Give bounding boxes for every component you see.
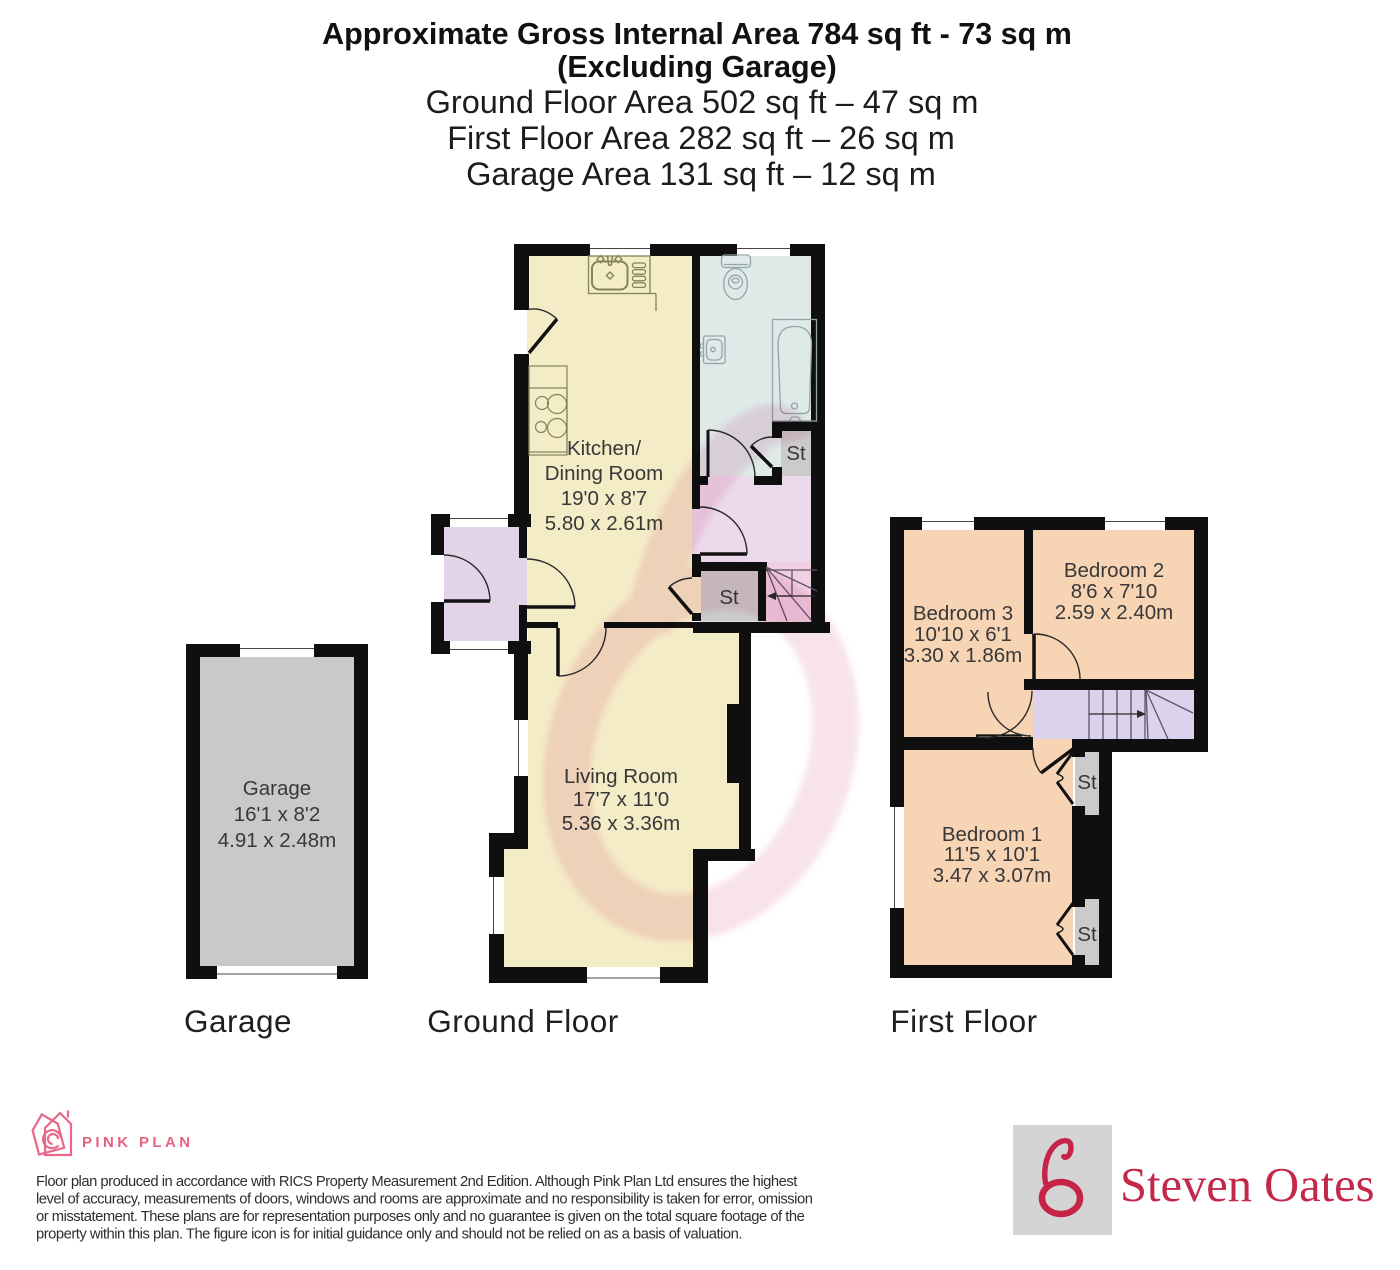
svg-text:10'10 x 6'1: 10'10 x 6'1 [914, 623, 1012, 646]
svg-text:Bedroom 3: Bedroom 3 [913, 602, 1013, 625]
svg-text:PINK PLAN: PINK PLAN [82, 1134, 193, 1151]
svg-text:St: St [1077, 923, 1097, 946]
svg-text:8'6 x 7'10: 8'6 x 7'10 [1071, 580, 1157, 603]
svg-text:4.91 x 2.48m: 4.91 x 2.48m [218, 829, 337, 852]
svg-text:(Excluding Garage): (Excluding Garage) [557, 50, 837, 84]
svg-text:Garage: Garage [184, 1003, 292, 1039]
svg-text:Garage: Garage [243, 777, 311, 800]
svg-text:3.47 x 3.07m: 3.47 x 3.07m [933, 864, 1052, 887]
svg-text:11'5 x 10'1: 11'5 x 10'1 [944, 843, 1040, 866]
svg-text:5.80 x 2.61m: 5.80 x 2.61m [545, 512, 664, 535]
svg-text:St: St [1077, 771, 1097, 794]
svg-text:Floor plan produced in accorda: Floor plan produced in accordance with R… [36, 1174, 797, 1190]
svg-text:level of accuracy, measurement: level of accuracy, measurements of doors… [36, 1192, 813, 1208]
svg-text:Steven Oates: Steven Oates [1120, 1159, 1375, 1212]
svg-text:St: St [786, 442, 806, 465]
svg-text:16'1 x 8'2: 16'1 x 8'2 [234, 803, 320, 826]
svg-text:Bedroom 2: Bedroom 2 [1064, 559, 1164, 582]
svg-text:Kitchen/: Kitchen/ [567, 437, 641, 460]
svg-text:Approximate Gross Internal Are: Approximate Gross Internal Area 784 sq f… [322, 17, 1072, 51]
svg-text:19'0 x 8'7: 19'0 x 8'7 [561, 487, 647, 510]
svg-text:3.30 x 1.86m: 3.30 x 1.86m [904, 644, 1023, 667]
svg-text:First Floor: First Floor [890, 1003, 1037, 1039]
svg-text:or misstatement. These plans a: or misstatement. These plans are for rep… [36, 1209, 805, 1225]
svg-text:2.59 x 2.40m: 2.59 x 2.40m [1055, 601, 1174, 624]
svg-text:property within this plan. The: property within this plan. The figure ic… [36, 1227, 742, 1243]
svg-text:Dining Room: Dining Room [545, 462, 664, 485]
svg-text:Garage Area 131 sq ft – 12 sq: Garage Area 131 sq ft – 12 sq m [466, 156, 936, 192]
svg-text:First Floor Area 282 sq ft – 2: First Floor Area 282 sq ft – 26 sq m [447, 120, 955, 156]
svg-text:Ground Floor Area 502 sq ft –: Ground Floor Area 502 sq ft – 47 sq m [426, 84, 979, 120]
svg-text:Ground Floor: Ground Floor [427, 1003, 619, 1039]
